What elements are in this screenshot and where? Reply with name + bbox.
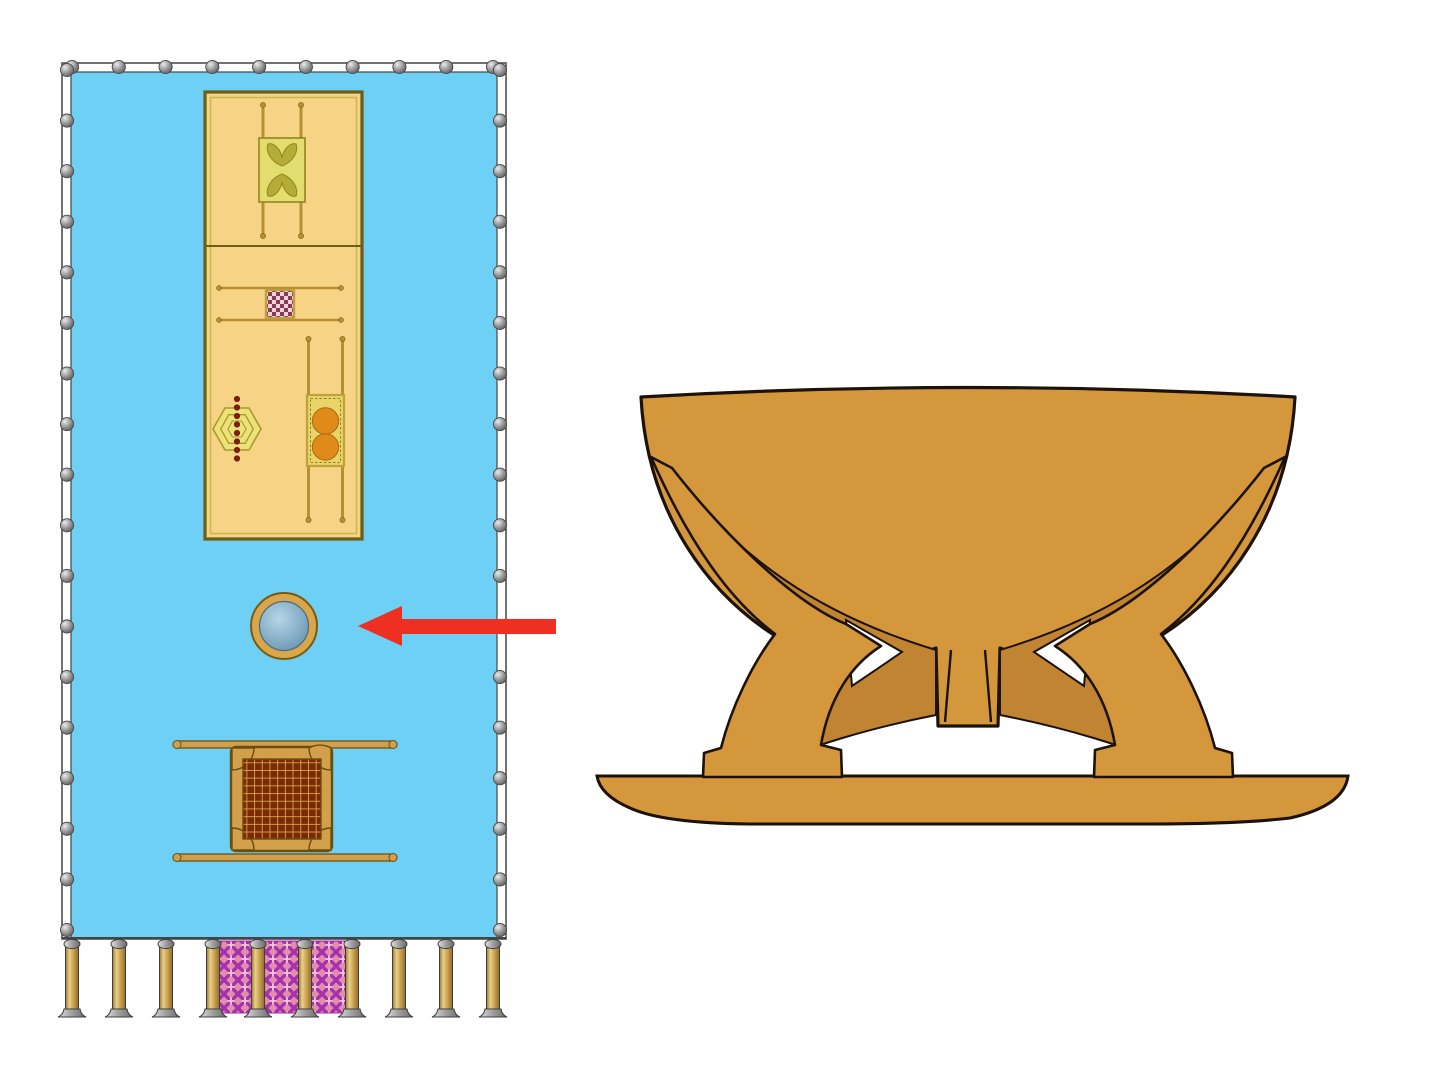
pillar-dot [60, 367, 73, 380]
pillar-dot [493, 721, 506, 734]
pillar-dot [493, 772, 506, 785]
pillar-dot [60, 215, 73, 228]
entrance-curtains [219, 941, 346, 1013]
pillar-dot [60, 873, 73, 886]
entrance-pillar [479, 939, 507, 1017]
bread-loaf [312, 434, 338, 460]
bread-loaf [312, 408, 338, 434]
pillar-dot [60, 165, 73, 178]
pillar-dot [493, 367, 506, 380]
pillar-dot [60, 923, 73, 936]
pillar-dot [493, 670, 506, 683]
pillar-dot [60, 721, 73, 734]
pillar-dot [346, 60, 359, 73]
laver-base [597, 776, 1348, 824]
pillar-dot [112, 60, 125, 73]
pillar-dot [60, 519, 73, 532]
pillar-dot [493, 873, 506, 886]
pillar-dot [159, 60, 172, 73]
courtyard-plan [0, 0, 580, 1080]
pillar-dot [493, 418, 506, 431]
pillar-dot [493, 316, 506, 329]
altar-grate [243, 759, 321, 839]
pillar-dot [493, 519, 506, 532]
pillar-dot [60, 822, 73, 835]
pillar-dot [493, 822, 506, 835]
pillar-dot [493, 266, 506, 279]
pillar-dot [493, 165, 506, 178]
pillar-dot [493, 215, 506, 228]
laver-top-view [251, 593, 317, 659]
entrance-pillar [385, 939, 413, 1017]
pillar-dot [253, 60, 266, 73]
pillar-dot [60, 620, 73, 633]
pillar-dot [60, 569, 73, 582]
pillar-dot [60, 772, 73, 785]
pillar-dot [60, 114, 73, 127]
entrance-pillar [58, 939, 86, 1017]
entrance-pillar [152, 939, 180, 1017]
entrance-pillar [432, 939, 460, 1017]
pillar-dot [493, 923, 506, 936]
entrance-curtain-panel [219, 941, 252, 1013]
laver-illustration [580, 360, 1370, 860]
entrance-pillar [105, 939, 133, 1017]
pillar-dot [440, 60, 453, 73]
entrance-curtain-panel [311, 941, 346, 1013]
pillar-dot [493, 468, 506, 481]
pillar-dot [60, 418, 73, 431]
pillar-dot [60, 468, 73, 481]
pillar-dot [60, 63, 73, 76]
pillar-dot [493, 569, 506, 582]
pillar-dot [60, 266, 73, 279]
diagram-canvas [0, 0, 1440, 1080]
entrance-curtain-panel [264, 941, 299, 1013]
pillar-dot [60, 670, 73, 683]
pillar-dot [299, 60, 312, 73]
pillar-dot [393, 60, 406, 73]
pillar-dot [206, 60, 219, 73]
pillar-dot [60, 316, 73, 329]
pillar-dot [493, 63, 506, 76]
pillar-dot [493, 114, 506, 127]
